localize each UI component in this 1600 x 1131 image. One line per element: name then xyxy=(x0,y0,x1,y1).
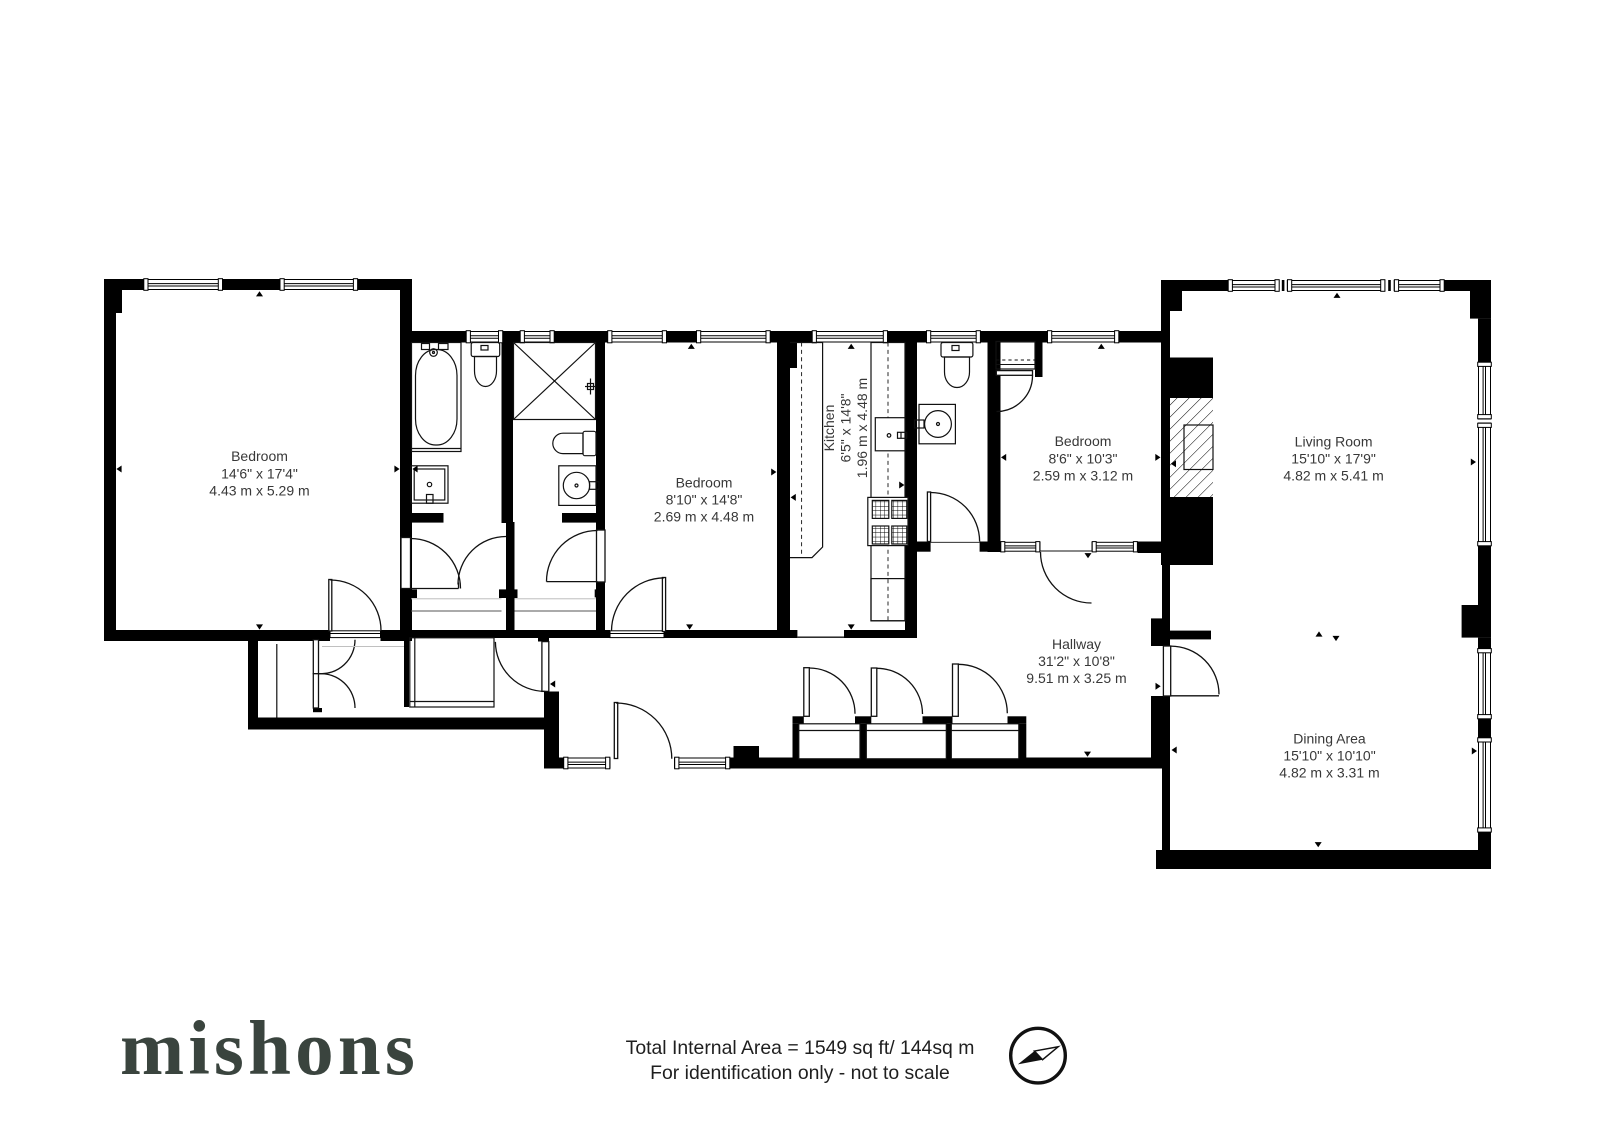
svg-text:9.51 m x 3.25 m: 9.51 m x 3.25 m xyxy=(1026,670,1126,686)
svg-text:14'6" x 17'4": 14'6" x 17'4" xyxy=(221,465,298,481)
svg-text:2.69 m x 4.48 m: 2.69 m x 4.48 m xyxy=(654,508,754,524)
svg-text:1.96 m x 4.48 m: 1.96 m x 4.48 m xyxy=(854,378,870,478)
svg-text:Living Room: Living Room xyxy=(1295,433,1373,449)
svg-text:4.82 m x 3.31 m: 4.82 m x 3.31 m xyxy=(1279,765,1379,781)
svg-text:For identification only - not: For identification only - not to scale xyxy=(650,1062,950,1084)
svg-text:6'5" x 14'8": 6'5" x 14'8" xyxy=(838,393,854,462)
svg-text:8'6" x 10'3": 8'6" x 10'3" xyxy=(1049,450,1118,466)
svg-text:15'10" x 10'10": 15'10" x 10'10" xyxy=(1283,748,1375,764)
svg-text:Bedroom: Bedroom xyxy=(231,448,288,464)
svg-text:Dining Area: Dining Area xyxy=(1293,730,1366,746)
svg-text:8'10" x 14'8": 8'10" x 14'8" xyxy=(666,491,743,507)
svg-text:2.59 m x 3.12 m: 2.59 m x 3.12 m xyxy=(1033,468,1133,484)
svg-text:Bedroom: Bedroom xyxy=(1055,433,1112,449)
svg-text:Total Internal Area = 1549 sq: Total Internal Area = 1549 sq ft/ 144sq … xyxy=(626,1037,975,1059)
svg-text:4.43 m x 5.29 m: 4.43 m x 5.29 m xyxy=(209,482,309,498)
svg-text:Kitchen: Kitchen xyxy=(821,405,837,452)
svg-text:15'10" x 17'9": 15'10" x 17'9" xyxy=(1291,451,1376,467)
svg-text:4.82 m x 5.41 m: 4.82 m x 5.41 m xyxy=(1283,468,1383,484)
svg-text:31'2" x 10'8": 31'2" x 10'8" xyxy=(1038,653,1115,669)
svg-text:Hallway: Hallway xyxy=(1052,636,1101,652)
svg-text:mishons: mishons xyxy=(120,1005,419,1091)
svg-text:Bedroom: Bedroom xyxy=(676,474,733,490)
